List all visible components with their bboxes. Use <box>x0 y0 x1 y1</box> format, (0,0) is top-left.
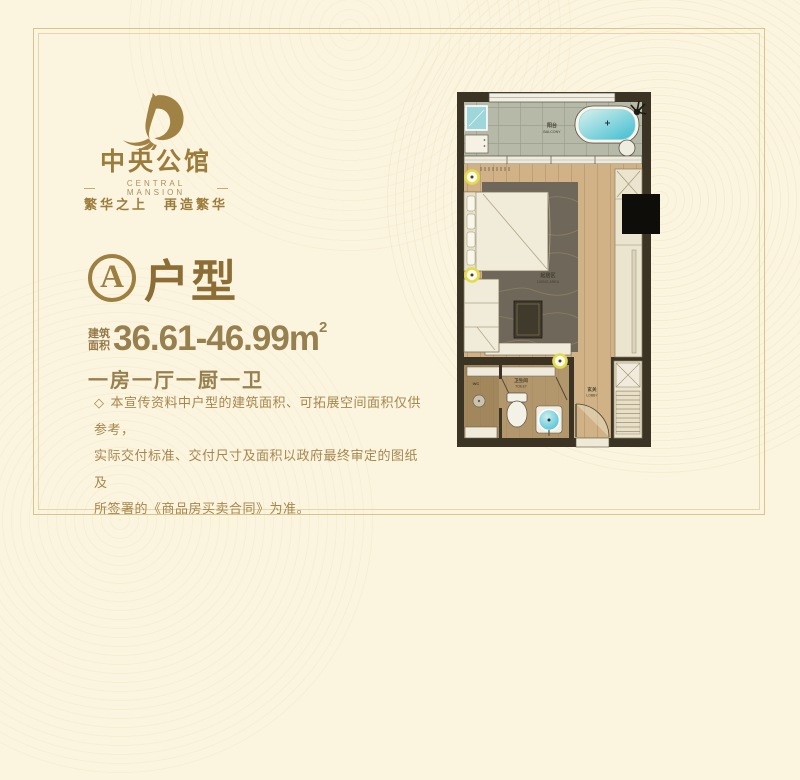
bathroom-zone: WC 卫生间 TOILET <box>464 365 569 438</box>
area-superscript: 2 <box>319 319 326 336</box>
entry-door-slab <box>576 438 609 447</box>
floorplan: 阳台 BALCONY <box>455 90 678 452</box>
disclaimer-line: 实际交付标准、交付尺寸及面积以政府最终审定的图纸及 <box>94 443 424 496</box>
room-layout-text: 一房一厅一厨一卫 <box>88 364 326 393</box>
wc-label: WC <box>473 381 480 386</box>
sofa <box>464 279 499 352</box>
floorplan-drawing: 阳台 BALCONY <box>455 90 678 452</box>
entry-closet <box>614 361 642 438</box>
living-label-cn: 起居区 <box>539 272 555 279</box>
unit-type-badge: A <box>88 254 136 302</box>
toilet-label-en: TOILET <box>515 385 527 389</box>
bath-cabinet <box>465 427 497 438</box>
window-sill <box>464 156 642 164</box>
coffee-table <box>514 301 542 338</box>
decorative-rule <box>217 188 228 189</box>
poster-page: { "brand": { "name_cn": "中央公馆", "name_en… <box>0 0 800 544</box>
toilet-fixture <box>507 393 527 427</box>
area-value: 36.61-46.99m2 <box>113 319 326 359</box>
area-label: 建筑 面积 <box>88 328 110 352</box>
toilet-label-cn: 卫生间 <box>514 377 528 384</box>
decorative-rule <box>84 188 95 189</box>
wash-basin <box>536 406 562 436</box>
disclaimer-line: 所签署的《商品房买卖合同》为准。 <box>94 496 424 523</box>
balcony-label-en: BALCONY <box>543 130 561 134</box>
balcony-cabinet <box>465 135 488 153</box>
living-zone: 起居区 LIVING AREA <box>464 164 660 357</box>
lobby-label-cn: 玄关 <box>587 386 597 393</box>
lobby-zone: 玄关 LOBBY <box>574 357 611 447</box>
brand-tagline: 繁华之上 再造繁华 <box>72 194 240 213</box>
bathtub <box>575 106 639 143</box>
bird-emblem-icon <box>116 92 196 150</box>
brand-logo-block: 中央公馆 CENTRAL MANSION <box>84 92 228 197</box>
diamond-bullet-icon: ◇ <box>94 395 105 410</box>
unit-type-label: 户型 <box>144 245 238 310</box>
tv-panel <box>622 194 660 234</box>
mirror-strip <box>632 250 636 353</box>
living-label-en: LIVING AREA <box>537 280 560 284</box>
unit-info-block: A 户型 建筑 面积 36.61-46.99m2 一房一厅一厨一卫 <box>88 245 326 393</box>
lobby-label-en: LOBBY <box>586 394 598 398</box>
balcony-label-cn: 阳台 <box>547 122 557 129</box>
brand-name-chinese: 中央公馆 <box>84 150 228 176</box>
disclaimer-line: ◇本宣传资料中户型的建筑面积、可拓展空间面积仅供参考， <box>94 390 424 443</box>
bed <box>464 192 550 271</box>
balcony-zone: 阳台 BALCONY <box>464 93 646 156</box>
disclaimer-text: ◇本宣传资料中户型的建筑面积、可拓展空间面积仅供参考， 实际交付标准、交付尺寸及… <box>94 390 424 523</box>
vanity-counter <box>467 367 555 376</box>
side-stool <box>619 140 635 156</box>
